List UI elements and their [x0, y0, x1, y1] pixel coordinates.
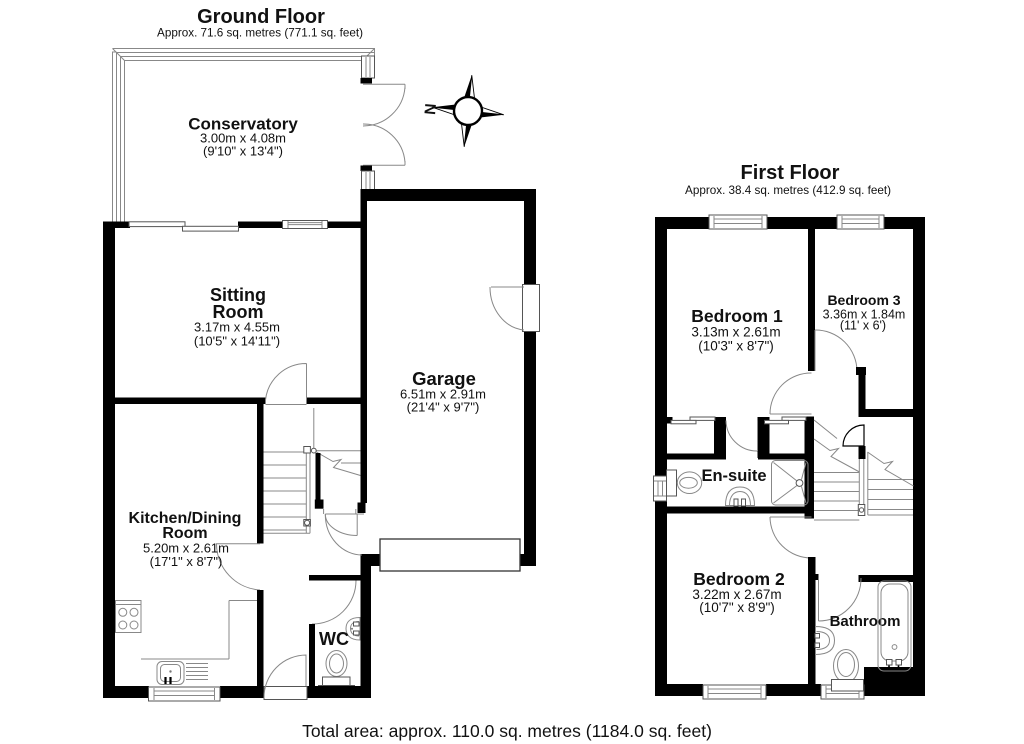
- svg-text:Approx. 71.6 sq. metres (771.1: Approx. 71.6 sq. metres (771.1 sq. feet): [157, 27, 363, 40]
- svg-text:(10'3" x 8'7"): (10'3" x 8'7"): [698, 339, 774, 354]
- svg-text:Total area: approx. 110.0 sq.: Total area: approx. 110.0 sq. metres (11…: [302, 721, 712, 741]
- svg-text:3.13m x 2.61m: 3.13m x 2.61m: [691, 325, 780, 340]
- svg-text:(10'5" x 14'11"): (10'5" x 14'11"): [194, 334, 280, 349]
- svg-text:N: N: [422, 103, 440, 116]
- svg-text:Ground Floor: Ground Floor: [197, 6, 325, 28]
- svg-text:First Floor: First Floor: [741, 162, 840, 184]
- svg-text:WC: WC: [319, 629, 349, 649]
- svg-text:Bedroom 3: Bedroom 3: [827, 292, 900, 308]
- svg-text:Room: Room: [162, 525, 207, 542]
- svg-text:En-suite: En-suite: [701, 467, 766, 485]
- svg-text:Bathroom: Bathroom: [830, 613, 901, 630]
- svg-text:(9'10" x 13'4"): (9'10" x 13'4"): [203, 144, 283, 159]
- svg-text:(10'7" x 8'9"): (10'7" x 8'9"): [699, 600, 775, 615]
- svg-text:(21'4" x 9'7"): (21'4" x 9'7"): [407, 400, 480, 415]
- svg-text:3.17m x 4.55m: 3.17m x 4.55m: [194, 320, 280, 335]
- svg-text:Bedroom 2: Bedroom 2: [693, 569, 785, 589]
- svg-text:(17'1" x 8'7"): (17'1" x 8'7"): [150, 554, 223, 569]
- svg-text:Bedroom 1: Bedroom 1: [691, 306, 783, 326]
- svg-text:(11' x 6'): (11' x 6'): [840, 319, 886, 333]
- svg-text:Approx. 38.4 sq. metres (412.9: Approx. 38.4 sq. metres (412.9 sq. feet): [685, 184, 891, 197]
